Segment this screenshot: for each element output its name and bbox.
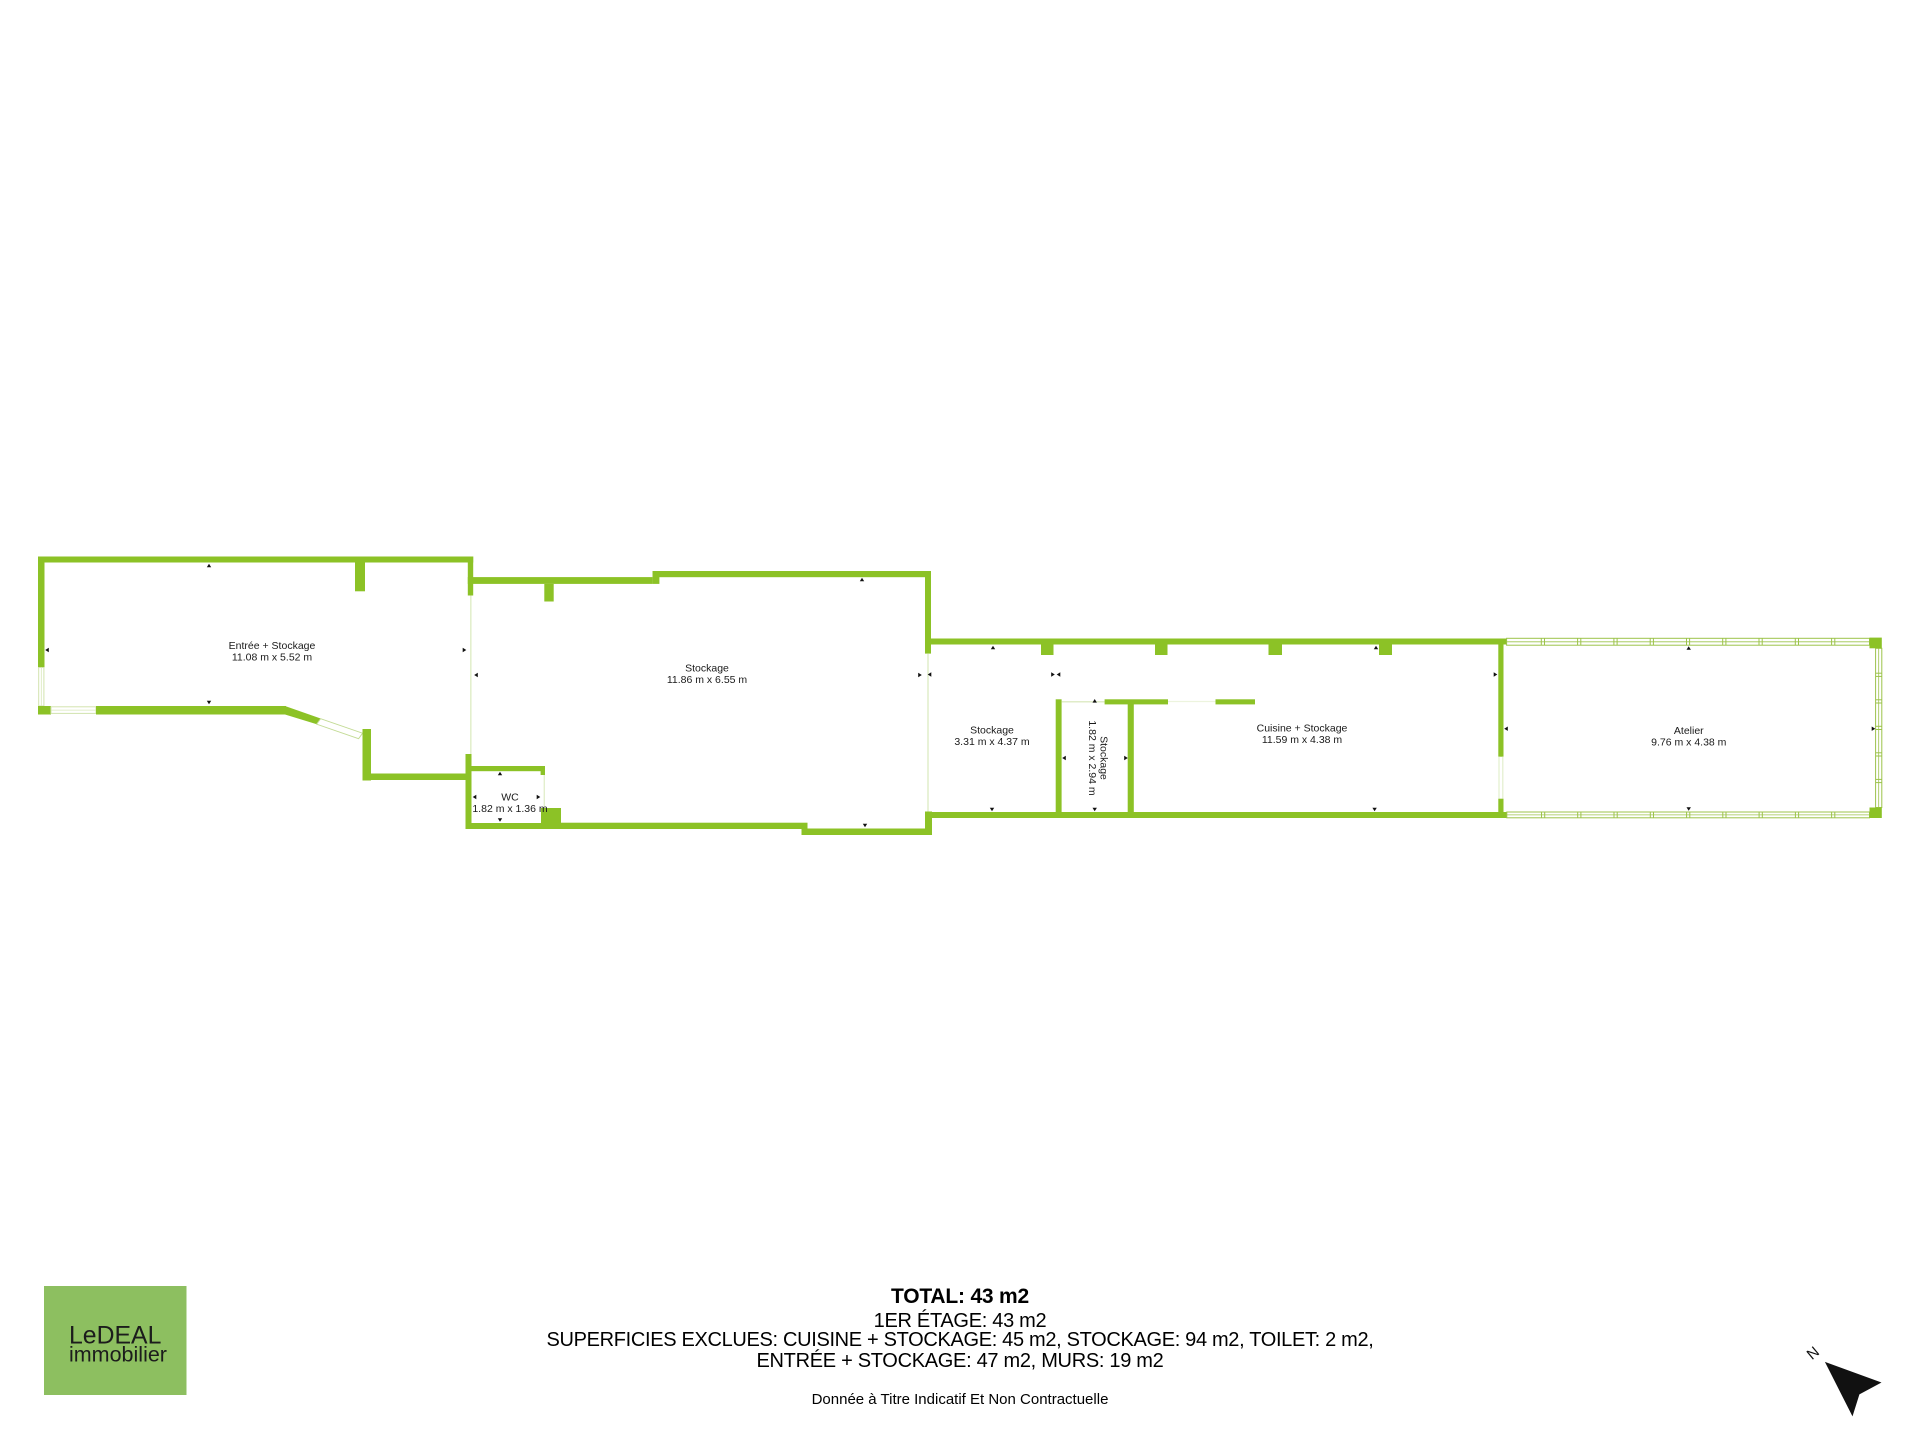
svg-text:9.76 m x 4.38 m: 9.76 m x 4.38 m <box>1651 737 1727 749</box>
svg-text:1.82 m x 1.36 m: 1.82 m x 1.36 m <box>472 803 548 815</box>
svg-text:Cuisine + Stockage: Cuisine + Stockage <box>1257 723 1348 735</box>
svg-text:11.59 m x 4.38 m: 11.59 m x 4.38 m <box>1262 734 1343 746</box>
svg-text:11.08 m x 5.52 m: 11.08 m x 5.52 m <box>232 652 313 664</box>
svg-text:Stockage: Stockage <box>1097 736 1109 780</box>
svg-text:11.86 m x 6.55 m: 11.86 m x 6.55 m <box>667 674 748 686</box>
svg-text:Stockage: Stockage <box>970 725 1014 737</box>
svg-text:Atelier: Atelier <box>1674 725 1704 737</box>
svg-text:3.31 m x 4.37 m: 3.31 m x 4.37 m <box>954 736 1030 748</box>
svg-text:1.82 m x 2.94 m: 1.82 m x 2.94 m <box>1086 720 1098 796</box>
svg-text:WC: WC <box>501 792 519 804</box>
svg-text:Entrée + Stockage: Entrée + Stockage <box>229 640 316 652</box>
svg-text:Stockage: Stockage <box>685 663 729 675</box>
